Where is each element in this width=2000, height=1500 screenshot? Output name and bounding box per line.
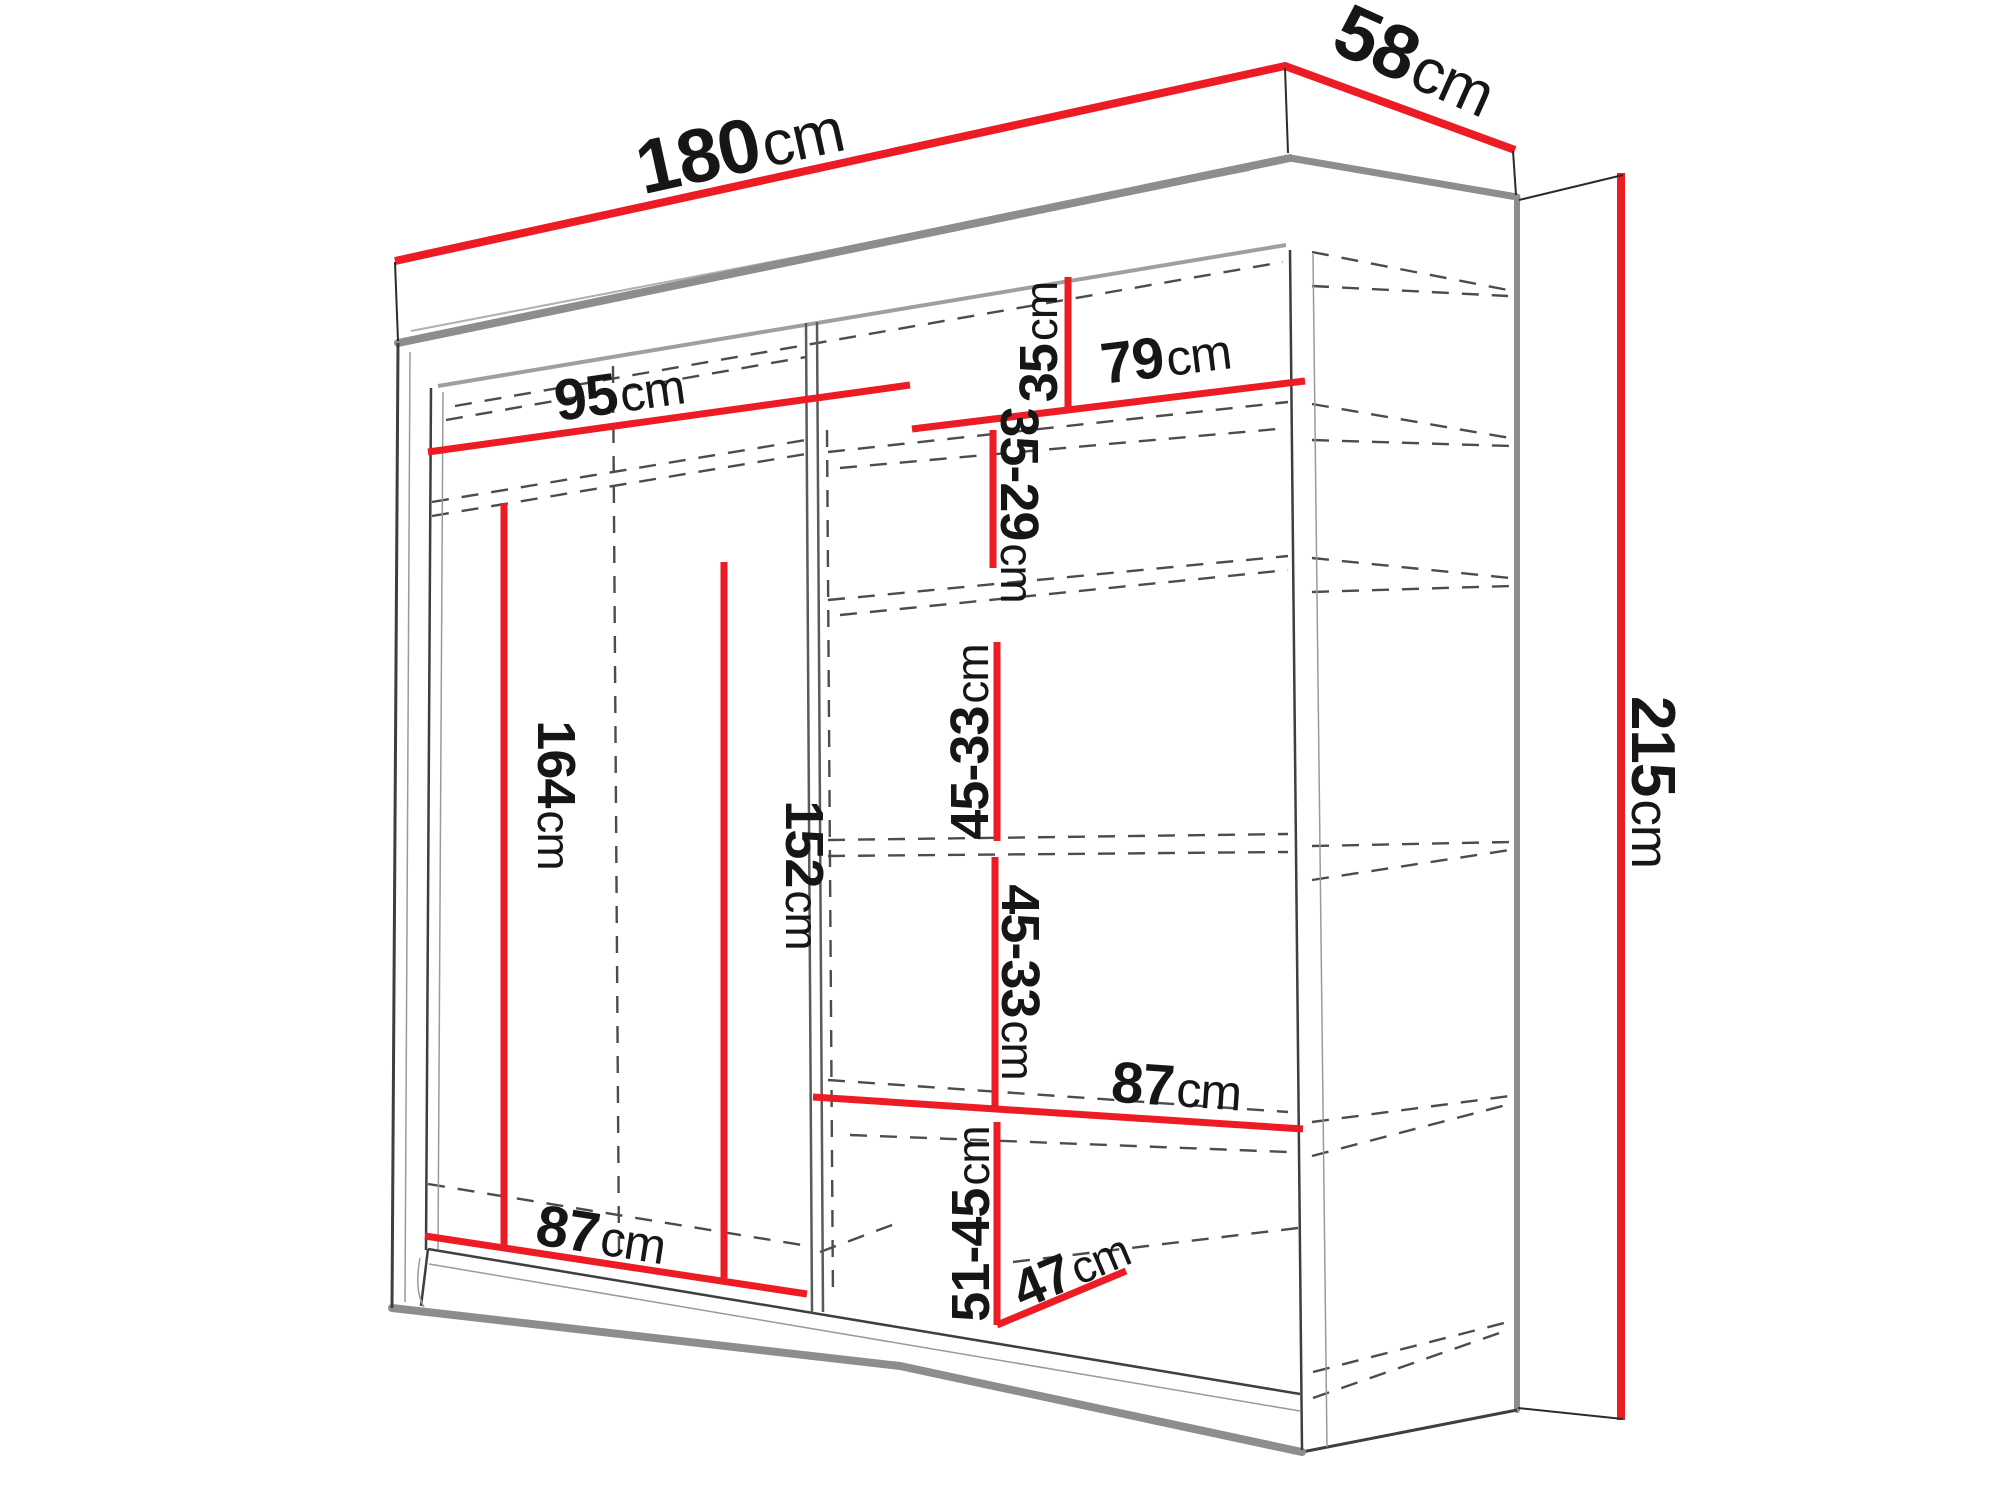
- dim-label-45-33-a: 45-33cm: [940, 644, 1000, 839]
- wardrobe-dimension-diagram: 180cm 58cm 215cm 95cm 35cm 79cm 35-29cm …: [0, 0, 2000, 1500]
- dim-label-51-45: 51-45cm: [941, 1126, 1001, 1321]
- dim-label-35-29: 35-29cm: [989, 407, 1049, 602]
- diagram-canvas: 180cm 58cm 215cm 95cm 35cm 79cm 35-29cm …: [0, 0, 2000, 1500]
- dim-label-45-33-b: 45-33cm: [990, 884, 1050, 1079]
- dim-label-152: 152cm: [774, 800, 834, 949]
- dim-label-width-180: 180cm: [628, 83, 850, 211]
- dim-label-35: 35cm: [1009, 282, 1069, 402]
- dim-label-164: 164cm: [526, 720, 586, 869]
- dim-label-height-215: 215cm: [1618, 696, 1687, 868]
